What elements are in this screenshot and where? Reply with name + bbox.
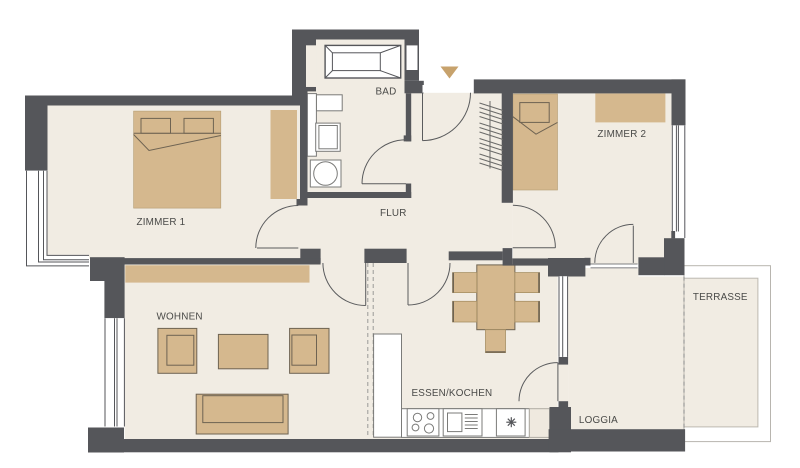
svg-text:WOHNEN: WOHNEN [157, 312, 203, 323]
svg-text:ZIMMER 1: ZIMMER 1 [137, 217, 186, 228]
svg-text:ZIMMER 2: ZIMMER 2 [597, 129, 646, 140]
svg-text:ESSEN/KOCHEN: ESSEN/KOCHEN [412, 388, 493, 399]
svg-text:FLUR: FLUR [380, 208, 407, 219]
svg-text:LOGGIA: LOGGIA [579, 415, 618, 426]
svg-text:BAD: BAD [376, 86, 397, 97]
svg-text:TERRASSE: TERRASSE [693, 292, 748, 303]
